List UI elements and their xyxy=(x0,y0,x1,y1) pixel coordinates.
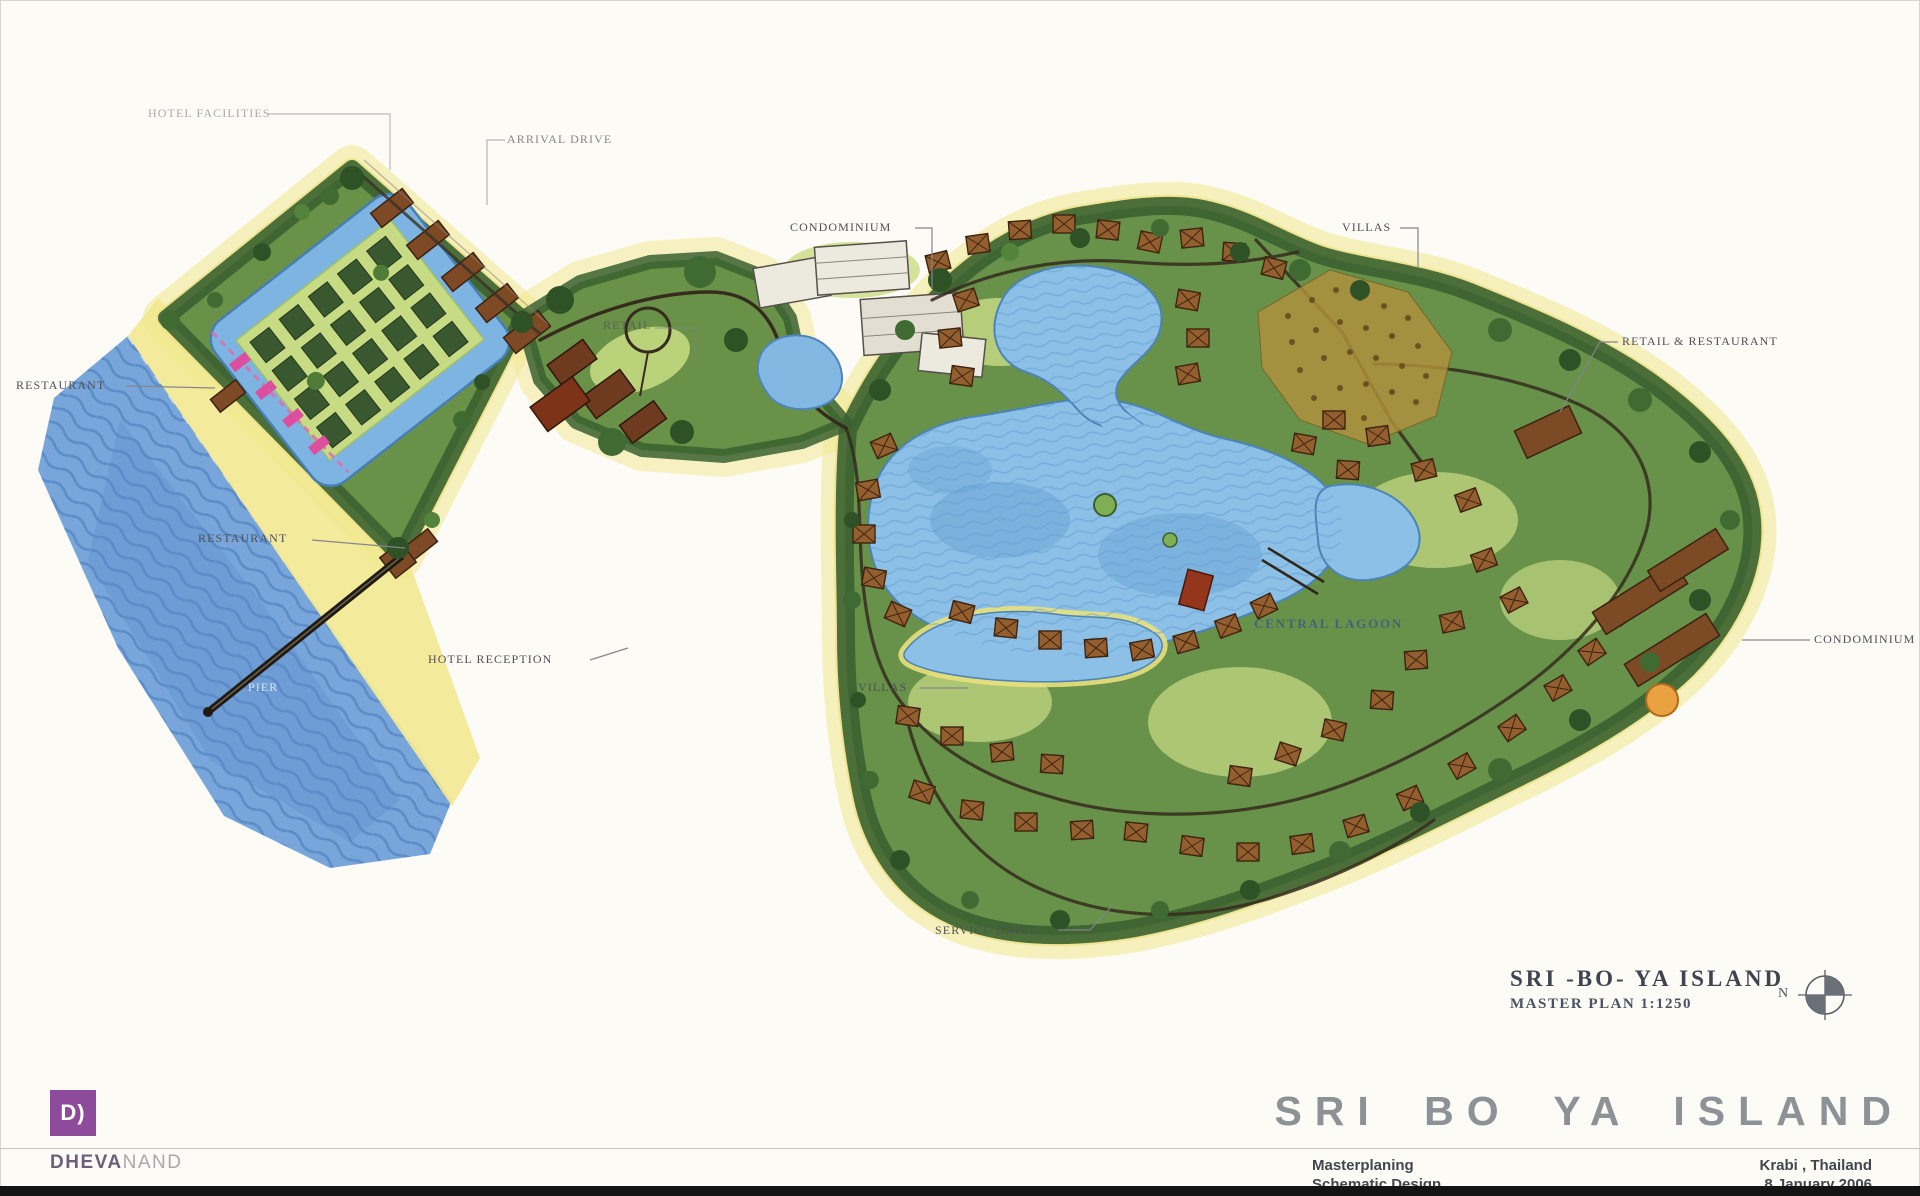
dhevanand-logo-text: DHEVANAND xyxy=(50,1152,182,1174)
north-label: N xyxy=(1778,986,1788,1002)
label-hotel-reception: HOTEL RECEPTION xyxy=(428,652,552,667)
credits-line-location: Krabi , Thailand xyxy=(1759,1156,1872,1175)
logo-text-primary: DHEVA xyxy=(50,1152,123,1173)
logo-text-secondary: NAND xyxy=(123,1152,183,1173)
label-condominium-east: CONDOMINIUM xyxy=(1814,632,1915,647)
label-service-drive: SERVICE DRIVE xyxy=(935,923,1038,938)
label-central-lagoon: CENTRAL LAGOON xyxy=(1254,616,1403,632)
project-title: SRI BO YA ISLAND xyxy=(1274,1088,1904,1135)
plan-title: SRI -BO- YA ISLAND xyxy=(1510,966,1784,992)
credits-line-masterplanning: Masterplaning xyxy=(1312,1156,1441,1175)
compass-icon xyxy=(1796,966,1854,1024)
label-hotel-facilities: HOTEL FACILITIES xyxy=(148,106,271,121)
label-villas-top: VILLAS xyxy=(1342,220,1391,235)
label-restaurant-beach: RESTAURANT xyxy=(16,378,105,393)
plan-scale: MASTER PLAN 1:1250 xyxy=(1510,996,1784,1013)
label-condominium-top: CONDOMINIUM xyxy=(790,220,891,235)
label-restaurant-mid: RESTAURANT xyxy=(198,531,287,546)
label-retail-restaurant: RETAIL & RESTAURANT xyxy=(1622,334,1778,349)
title-block: SRI -BO- YA ISLAND MASTER PLAN 1:1250 xyxy=(1510,966,1784,1013)
label-arrival-drive: ARRIVAL DRIVE xyxy=(507,132,612,147)
sheet-bottom-edge xyxy=(0,1186,1920,1196)
label-villas-west: VILLAS xyxy=(858,680,907,695)
label-pier: PIER xyxy=(248,680,278,695)
masterplan-drawing xyxy=(0,0,1920,1196)
dhevanand-logo-icon: D) xyxy=(50,1090,96,1136)
masterplan-sheet: HOTEL FACILITIES ARRIVAL DRIVE RETAIL CO… xyxy=(0,0,1920,1196)
label-retail: RETAIL xyxy=(603,318,651,333)
footer-divider xyxy=(0,1148,1920,1149)
